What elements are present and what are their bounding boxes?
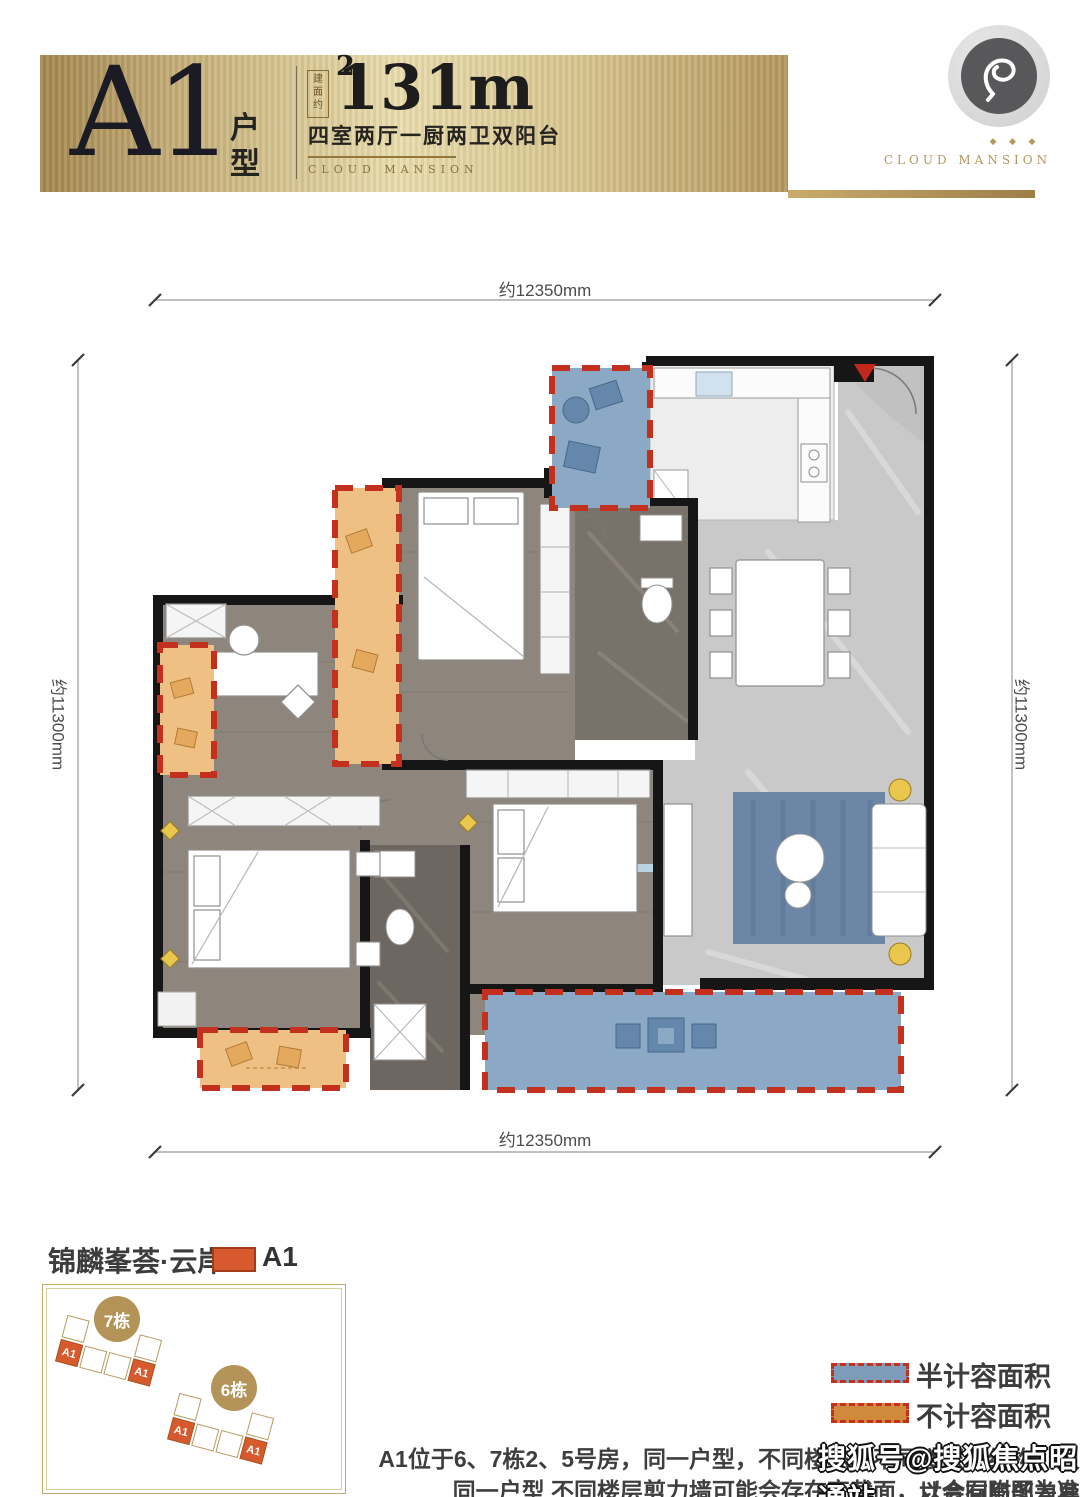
legend-swatch-non-counted <box>831 1403 909 1423</box>
balcony-orange-mid <box>335 488 399 764</box>
legend-label-half-counted: 半计容面积 <box>916 1355 1051 1394</box>
balcony-blue-top <box>552 368 650 508</box>
title-banner: A1 户型 建面约 131m2 四室两厅一厨两卫双阳台 CLOUD MANSIO… <box>40 55 788 192</box>
logo-badge <box>961 38 1037 114</box>
balcony-blue-bottom <box>485 992 901 1090</box>
watermark: 搜狐号@搜狐焦点昭通站 <box>818 1437 1080 1497</box>
banner-brand-text: CLOUD MANSION <box>308 163 479 176</box>
floorplan-svg <box>148 352 948 1107</box>
building-6: A1 A1 6栋 <box>173 1391 283 1451</box>
unit-other <box>79 1345 107 1373</box>
bathroom-upper <box>575 505 695 740</box>
building-7: A1 A1 7栋 <box>61 1313 171 1373</box>
bathroom-lower <box>370 845 460 1090</box>
building-7-label: 7栋 <box>94 1296 140 1342</box>
logo-brand-text: CLOUD MANSION <box>880 153 1055 167</box>
logo-stars: ◆ ◆ ◆ <box>975 136 1055 147</box>
layout-subtitle: 四室两厅一厨两卫双阳台 <box>308 120 561 150</box>
dimension-top: 约12350mm <box>395 276 695 301</box>
flyer-page: A1 户型 建面约 131m2 四室两厅一厨两卫双阳台 CLOUD MANSIO… <box>0 0 1080 1497</box>
legend-label-non-counted: 不计容面积 <box>916 1395 1051 1434</box>
banner-tail-bar <box>788 190 1035 198</box>
corner-closet <box>158 992 196 1026</box>
unit-other <box>246 1412 274 1440</box>
area-exponent: 2 <box>336 51 356 82</box>
banner-gold-rule <box>308 156 456 158</box>
siteplan-box: A1 A1 7栋 A1 A1 6栋 <box>42 1284 346 1494</box>
siteplan-swatch <box>212 1247 256 1272</box>
unit-other <box>174 1393 202 1421</box>
banner-divider <box>296 66 297 179</box>
unit-other <box>62 1315 90 1343</box>
plan-code: A1 <box>70 41 230 185</box>
dimension-right: 约11300mm <box>1011 669 1036 781</box>
building-6-label: 6栋 <box>211 1365 257 1411</box>
balcony-orange-left <box>160 645 214 775</box>
balcony-orange-bottom <box>200 1030 346 1088</box>
plan-type-label: 户型 <box>228 111 262 183</box>
area-prefix-tag: 建面约 <box>307 70 329 118</box>
script-p-icon <box>973 48 1025 104</box>
unit-other <box>191 1423 219 1451</box>
unit-other <box>134 1334 162 1362</box>
siteplan-swatch-label: A1 <box>262 1241 298 1273</box>
dimension-left: 约11300mm <box>48 669 73 781</box>
dimension-bottom: 约12350mm <box>395 1126 695 1151</box>
legend-swatch-half-counted <box>831 1363 909 1383</box>
